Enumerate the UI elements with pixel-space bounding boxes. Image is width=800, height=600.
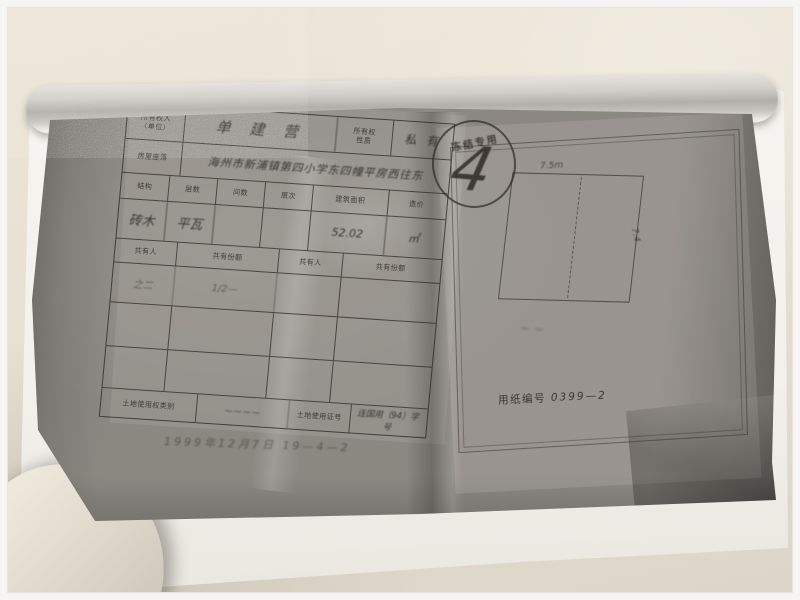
empty-cell xyxy=(103,346,169,391)
form-table: 所有权人 （单位） 单 建 营 所有权 性质 私 有 房屋座落 海州市新浦镇第四… xyxy=(99,102,455,438)
land-use-type-label: 土地使用权类别 xyxy=(100,388,198,422)
spec-value-floors: 平瓦 xyxy=(164,202,215,244)
floor-plan-rectangle xyxy=(498,172,644,302)
empty-cell xyxy=(270,313,338,360)
spec-header-rooms: 间数 xyxy=(216,179,266,207)
paper-number-value: 0399—2 xyxy=(551,390,607,404)
location-label: 房屋座落 xyxy=(123,139,184,176)
spec-header-area: 建筑面积 xyxy=(312,186,390,216)
spec-value-price: ㎡ xyxy=(384,216,443,259)
co-owner-value-2 xyxy=(274,273,341,316)
spec-header-price: 造价 xyxy=(388,191,446,220)
land-cert-number-label: 土地使用证号 xyxy=(287,400,351,432)
spec-value-rooms xyxy=(212,205,263,247)
spec-header-level: 层次 xyxy=(264,182,314,210)
co-share-value-1: 1/2— xyxy=(172,267,277,313)
co-share-value-2 xyxy=(338,278,437,323)
spec-value-structure: 砖木 xyxy=(116,199,167,241)
co-owner-value-1: 之二 xyxy=(111,262,176,305)
empty-cell xyxy=(164,350,270,398)
empty-cell xyxy=(168,306,274,356)
co-owner-label-2: 共有人 xyxy=(278,249,344,276)
land-use-type-value: ~~~~ xyxy=(196,394,290,428)
nature-label-line2: 性质 xyxy=(356,136,372,145)
empty-cell xyxy=(334,317,434,366)
co-owner-label-1: 共有人 xyxy=(114,239,178,266)
spec-header-floors: 层数 xyxy=(168,176,218,204)
spec-value-level xyxy=(260,208,311,250)
photograph-of-document: 所有权人 （单位） 单 建 营 所有权 性质 私 有 房屋座落 海州市新浦镇第四… xyxy=(8,8,792,592)
ownership-nature-label: 所有权 性质 xyxy=(335,117,394,156)
spec-header-structure: 结构 xyxy=(120,173,170,201)
empty-cell xyxy=(266,357,334,402)
empty-cell xyxy=(330,361,430,408)
owner-label-line2: （单位） xyxy=(140,121,171,131)
faint-handwriting-mark: ~~ xyxy=(520,321,549,336)
plan-width-dimension: 7.5m xyxy=(540,160,564,171)
paper-number-label: 用纸编号 xyxy=(498,392,546,406)
land-cert-number-value: 连国用（94）字 号 xyxy=(349,405,425,438)
spec-value-area: 52.02 xyxy=(308,211,387,255)
empty-cell xyxy=(106,302,172,349)
